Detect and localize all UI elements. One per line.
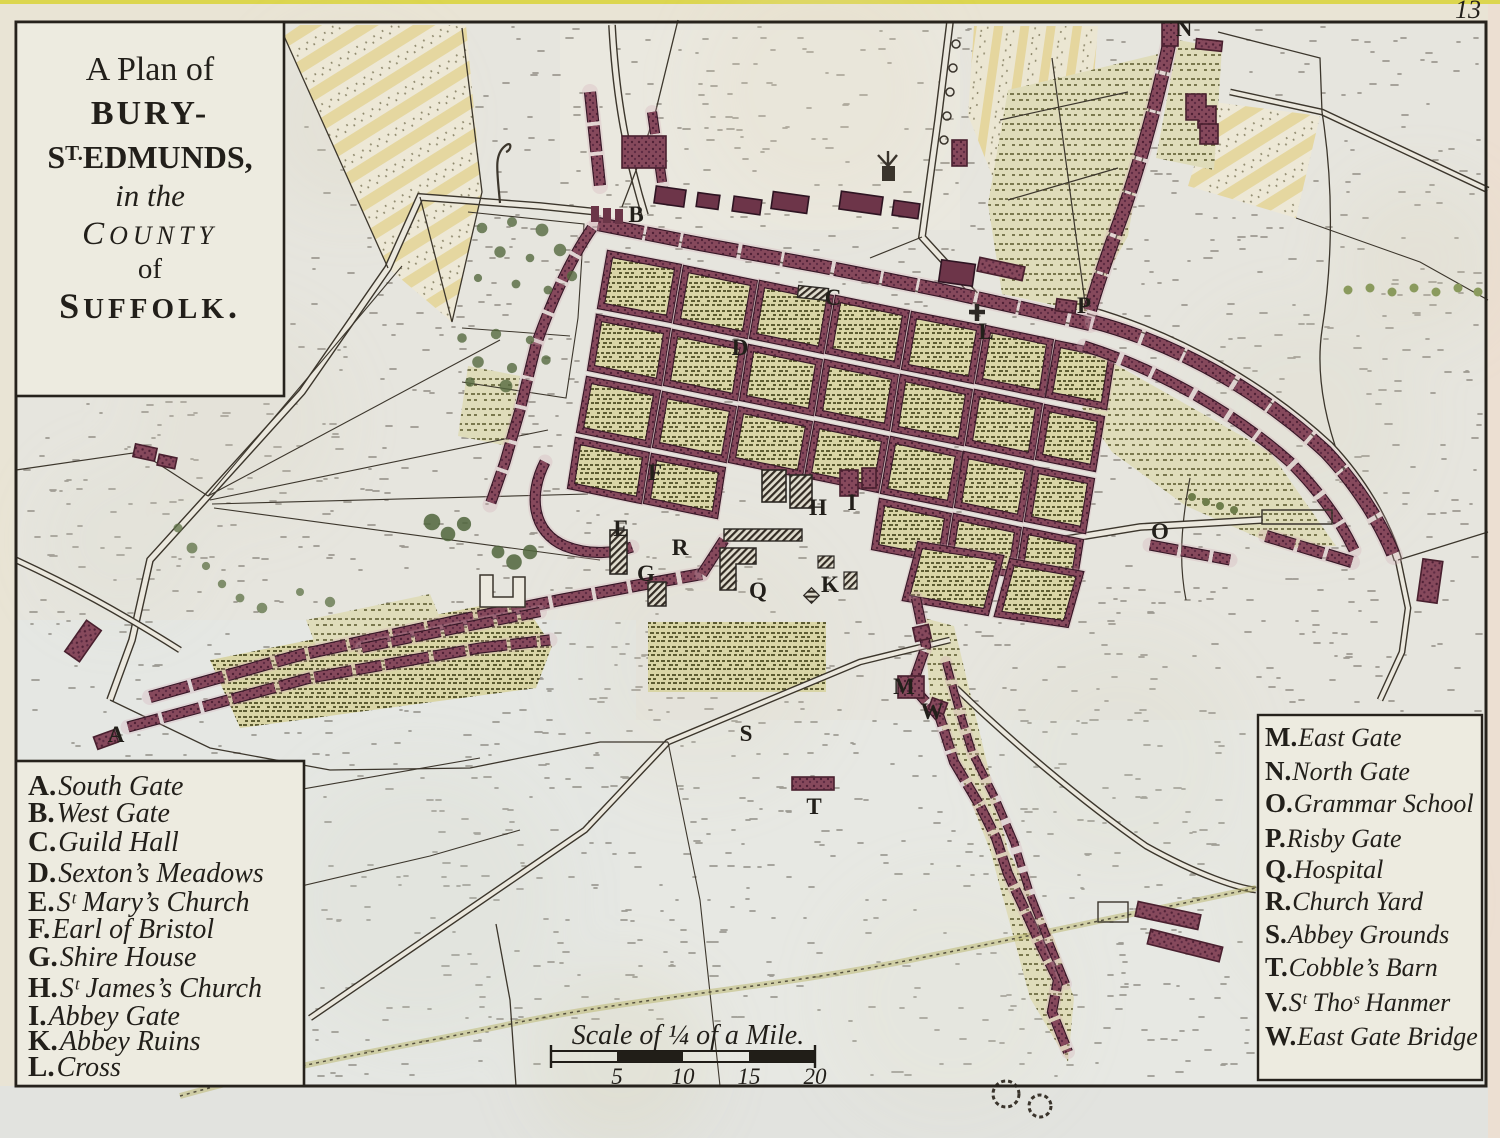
svg-text:of: of [138, 253, 163, 285]
svg-text:O.Grammar School: O.Grammar School [1265, 788, 1474, 818]
svg-text:15: 15 [738, 1064, 761, 1089]
svg-text:C: C [825, 285, 842, 310]
svg-text:R: R [672, 535, 689, 560]
svg-text:10: 10 [672, 1064, 696, 1089]
svg-text:T: T [806, 794, 821, 819]
svg-text:B.West Gate: B.West Gate [28, 797, 170, 829]
svg-text:P: P [1077, 293, 1091, 318]
svg-text:D.Sexton’s Meadows: D.Sexton’s Meadows [28, 857, 264, 889]
svg-text:H.Sᵗ James’s Church: H.Sᵗ James’s Church [28, 972, 262, 1004]
svg-text:in the: in the [115, 178, 185, 213]
svg-text:V.Sᵗ Thoˢ Hanmer: V.Sᵗ Thoˢ Hanmer [1265, 987, 1451, 1017]
svg-text:S: S [740, 721, 753, 746]
svg-text:5: 5 [611, 1064, 623, 1089]
svg-text:L: L [978, 319, 993, 344]
svg-text:E: E [613, 516, 628, 541]
svg-text:T.Cobble’s Barn: T.Cobble’s Barn [1265, 952, 1438, 982]
svg-text:C.Guild Hall: C.Guild Hall [28, 826, 179, 858]
svg-text:G: G [637, 561, 655, 586]
svg-text:A: A [108, 722, 125, 747]
svg-text:D: D [732, 335, 749, 360]
svg-text:K: K [821, 572, 839, 597]
svg-text:L.Cross: L.Cross [28, 1051, 121, 1083]
svg-text:O: O [1151, 519, 1169, 544]
svg-text:BURY-: BURY- [91, 95, 209, 132]
svg-text:H: H [809, 495, 827, 520]
svg-text:13: 13 [1455, 0, 1481, 24]
svg-text:I: I [848, 490, 857, 515]
svg-text:R.Church Yard: R.Church Yard [1265, 886, 1424, 916]
svg-text:Scale of ¼ of a Mile.: Scale of ¼ of a Mile. [572, 1020, 805, 1051]
svg-text:N: N [1176, 16, 1193, 41]
svg-text:W: W [921, 699, 944, 724]
svg-text:COUNTY: COUNTY [82, 216, 218, 252]
svg-text:Q: Q [749, 578, 767, 603]
svg-text:N.North Gate: N.North Gate [1265, 756, 1410, 786]
svg-text:W.East Gate Bridge: W.East Gate Bridge [1265, 1021, 1478, 1051]
svg-text:Q.Hospital: Q.Hospital [1265, 854, 1383, 884]
svg-text:G.Shire House: G.Shire House [28, 941, 196, 973]
svg-text:M.East Gate: M.East Gate [1265, 722, 1402, 752]
svg-text:A Plan of: A Plan of [86, 51, 215, 88]
svg-text:M: M [893, 674, 915, 699]
svg-text:P.Risby Gate: P.Risby Gate [1265, 823, 1402, 853]
svg-text:B: B [628, 202, 643, 227]
svg-text:20: 20 [804, 1064, 828, 1089]
svg-text:F: F [648, 460, 662, 485]
svg-text:S.Abbey Grounds: S.Abbey Grounds [1265, 919, 1449, 949]
